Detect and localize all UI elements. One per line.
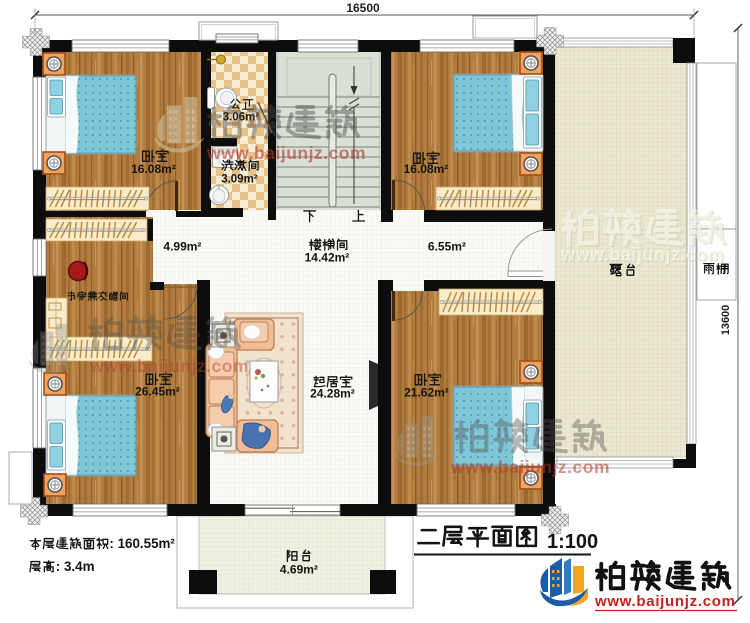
svg-text:26.45m²: 26.45m² <box>135 385 180 399</box>
svg-text:: 3.4m: : 3.4m <box>56 559 95 574</box>
svg-text:1:100: 1:100 <box>547 531 598 553</box>
svg-text:13600: 13600 <box>720 305 732 336</box>
svg-text:6.55m²: 6.55m² <box>428 240 466 254</box>
svg-text:21.62m²: 21.62m² <box>404 386 449 400</box>
svg-text:www.baijunjz.com: www.baijunjz.com <box>89 356 249 376</box>
svg-text:16500: 16500 <box>346 1 380 15</box>
svg-text:: 160.55m²: : 160.55m² <box>109 536 175 551</box>
svg-text:4.69m²: 4.69m² <box>280 563 318 577</box>
svg-text:4.99m²: 4.99m² <box>163 240 201 254</box>
svg-text:16.08m²: 16.08m² <box>131 162 176 176</box>
svg-text:www.baijunjz.com: www.baijunjz.com <box>560 245 724 265</box>
svg-text:www.baijunjz.com: www.baijunjz.com <box>594 593 736 610</box>
svg-text:14.42m²: 14.42m² <box>305 251 350 265</box>
svg-text:www.baijunjz.com: www.baijunjz.com <box>450 457 610 477</box>
svg-text:16.08m²: 16.08m² <box>404 162 449 176</box>
svg-text:24.28m²: 24.28m² <box>310 387 355 401</box>
svg-text:www.baijunjz.com: www.baijunjz.com <box>206 143 366 163</box>
svg-text:3.09m²: 3.09m² <box>221 174 258 186</box>
